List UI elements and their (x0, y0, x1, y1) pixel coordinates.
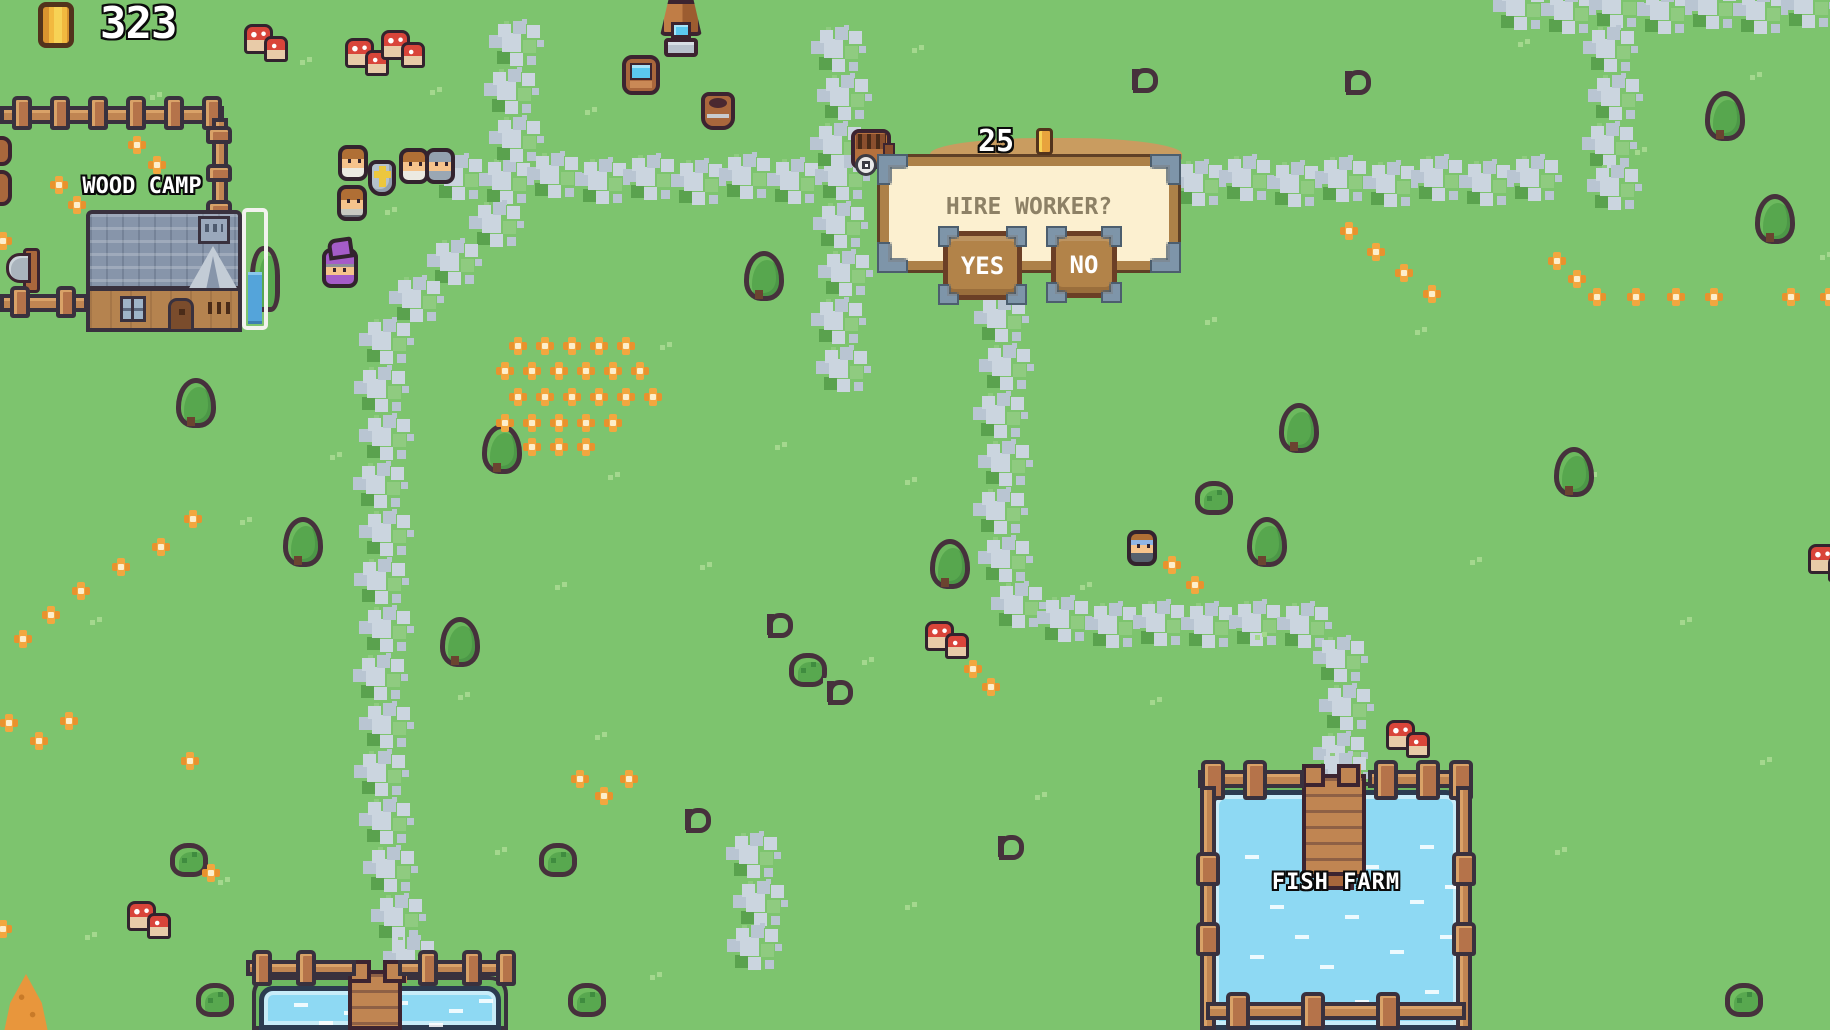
no-button-label: NO (1070, 251, 1099, 279)
corner-bracket-icon (1103, 228, 1120, 245)
stone-path (1742, 0, 1755, 5)
stone-path (368, 610, 381, 623)
grass-tuft (912, 48, 917, 53)
flower (1588, 288, 1606, 306)
well-basin (664, 38, 698, 57)
flower (0, 714, 18, 732)
stone-path (820, 30, 833, 43)
fence-rail (1200, 786, 1216, 1030)
stone-path (987, 540, 1000, 553)
flower (617, 388, 635, 406)
water-ripple (294, 1003, 308, 1007)
tree (176, 378, 206, 426)
stone-path (584, 162, 597, 175)
flower (563, 337, 581, 355)
flower (550, 414, 568, 432)
stone-path (1372, 165, 1385, 178)
stone-path (1328, 688, 1341, 701)
mushrooms (244, 24, 282, 60)
fence-post (126, 96, 146, 130)
flower (1782, 288, 1800, 306)
water-ripple (319, 1021, 333, 1025)
flower (72, 582, 90, 600)
water-ripple (1250, 955, 1264, 959)
water-ripple (429, 1023, 443, 1027)
wood-camp-building[interactable] (86, 210, 242, 332)
fence-post (1452, 922, 1476, 956)
mushrooms (381, 30, 419, 66)
stone-path (498, 24, 511, 37)
water-barrel[interactable] (622, 55, 660, 95)
stone-path (536, 156, 549, 169)
fence-post (1196, 852, 1220, 886)
grass-tuft (150, 95, 155, 100)
flower (550, 362, 568, 380)
hire-worker-dialog: HIRE WORKER? (880, 157, 1178, 270)
flower (42, 606, 60, 624)
stone-path (988, 348, 1001, 361)
flower (631, 362, 649, 380)
flower (0, 920, 12, 938)
stone-path (362, 658, 375, 671)
flower (523, 438, 541, 456)
flower (14, 630, 32, 648)
flower (590, 337, 608, 355)
yes-button-label: YES (961, 252, 1004, 280)
grass-tuft (1760, 760, 1765, 765)
bush (1725, 983, 1763, 1017)
stone-path (1286, 606, 1299, 619)
dock (1302, 774, 1366, 878)
axe-icon (6, 246, 40, 290)
fish-farm-partial[interactable] (246, 946, 516, 1030)
flower (595, 787, 613, 805)
flower (128, 136, 146, 154)
tree (1279, 403, 1309, 451)
tree (283, 517, 313, 565)
stone-path (819, 126, 832, 139)
stone-path (1516, 159, 1529, 172)
flower (523, 414, 541, 432)
stone-path (498, 120, 511, 133)
corner-bracket-icon (1152, 244, 1179, 271)
flower (577, 438, 595, 456)
stone-path (493, 72, 506, 85)
stone-path (1324, 160, 1337, 173)
flower (1820, 288, 1830, 306)
coin-icon (1036, 128, 1053, 155)
stone-path (363, 370, 376, 383)
stone-path (368, 418, 381, 431)
fence-post (164, 96, 184, 130)
grass-tuft (1680, 620, 1685, 625)
flower (1163, 556, 1181, 574)
fence-post (1226, 992, 1250, 1030)
grass-tuft (1035, 795, 1040, 800)
grass-tuft (495, 850, 500, 855)
grass-tuft (1150, 700, 1155, 705)
fence-post (1452, 852, 1476, 886)
knight-shield[interactable] (368, 160, 396, 196)
stone-path (1596, 168, 1609, 181)
flower (1548, 252, 1566, 270)
dock (348, 970, 402, 1030)
bush (196, 983, 234, 1017)
corner-bracket-icon (940, 286, 957, 303)
flower (184, 510, 202, 528)
stone-path (1592, 30, 1605, 43)
tree (1554, 447, 1584, 495)
fence-post (1374, 760, 1398, 800)
stone-path (1646, 0, 1659, 5)
villager[interactable] (338, 145, 368, 181)
fence-post (1196, 922, 1220, 956)
fence-post (10, 286, 30, 318)
stone-path (1276, 165, 1289, 178)
water-ripple (1295, 935, 1309, 939)
clay-pot[interactable] (701, 92, 735, 130)
corner-bracket-icon (1103, 284, 1120, 301)
wall-vent (208, 302, 234, 314)
yes-button[interactable]: YES (943, 231, 1022, 300)
stone-path (1238, 604, 1251, 617)
water-ripple (1410, 900, 1424, 904)
stone-path (368, 706, 381, 719)
flower (112, 558, 130, 576)
stone-path (776, 162, 789, 175)
stone-path (1180, 164, 1193, 177)
sprout (822, 678, 856, 704)
grass-tuft (1415, 330, 1420, 335)
fence-post (1376, 992, 1400, 1030)
flower (536, 337, 554, 355)
grass-tuft (1255, 635, 1260, 640)
flower (604, 414, 622, 432)
stone-path (735, 836, 748, 849)
well[interactable] (660, 0, 702, 58)
water-ripple (1270, 905, 1284, 909)
grass-tuft (1555, 850, 1560, 855)
stone-path (824, 158, 837, 171)
bush (1195, 481, 1233, 515)
fence-post (1301, 992, 1325, 1030)
flower (30, 732, 48, 750)
sprout (993, 833, 1027, 859)
window (120, 296, 146, 322)
tree (1247, 517, 1277, 565)
flower (152, 538, 170, 556)
fence-post (1416, 760, 1440, 800)
flower (563, 388, 581, 406)
stone-path (363, 562, 376, 575)
coin-icon (38, 2, 74, 48)
flower (202, 864, 220, 882)
mushrooms (1808, 544, 1830, 580)
grass-tuft (1470, 560, 1475, 565)
fence-post (50, 96, 70, 130)
dialog-title: HIRE WORKER? (889, 194, 1169, 220)
fence-post (496, 950, 516, 986)
flower (1568, 270, 1586, 288)
grass-tuft (1820, 255, 1825, 260)
pot (0, 136, 12, 166)
corner-bracket-icon (1048, 284, 1065, 301)
stone-path (1420, 159, 1433, 172)
flower (0, 232, 12, 250)
villager[interactable] (337, 185, 367, 221)
flower (644, 388, 662, 406)
flower (536, 388, 554, 406)
carrot (4, 974, 48, 1030)
flower (1186, 576, 1204, 594)
stone-path (363, 754, 376, 767)
flower (982, 678, 1000, 696)
fence-post (252, 950, 272, 986)
mushrooms (925, 621, 963, 657)
fence-post (296, 950, 316, 986)
mushrooms (345, 38, 383, 74)
grass-tuft (905, 480, 910, 485)
grass-tuft (555, 585, 560, 590)
flower (1340, 222, 1358, 240)
fish-farm-label: FISH FARM (1226, 870, 1446, 895)
stone-path (827, 254, 840, 267)
stone-path (1228, 159, 1241, 172)
grass-tuft (430, 90, 435, 95)
stone-path (1190, 606, 1203, 619)
grass-tuft (1518, 42, 1523, 47)
flower (509, 388, 527, 406)
grass-tuft (330, 455, 335, 460)
stone-path (1322, 736, 1335, 749)
tree (1705, 91, 1735, 139)
stone-path (372, 850, 385, 863)
grass-tuft (458, 695, 463, 700)
fence-post (56, 286, 76, 318)
stone-path (736, 928, 749, 941)
water-ripple (479, 999, 493, 1003)
flower (60, 712, 78, 730)
no-button[interactable]: NO (1051, 231, 1117, 298)
fence-post (462, 950, 482, 986)
sprout (680, 806, 714, 832)
grass-tuft (700, 565, 705, 570)
flower (1705, 288, 1723, 306)
stone-path (822, 206, 835, 219)
stone-path (680, 163, 693, 176)
tree (744, 251, 774, 299)
flower (577, 362, 595, 380)
flower (1367, 243, 1385, 261)
flower (1667, 288, 1685, 306)
tree (930, 539, 960, 587)
armored-villager[interactable] (425, 148, 455, 184)
stone-path (825, 350, 838, 363)
fence-post (418, 950, 438, 986)
grass-tuft (650, 975, 655, 980)
stone-path (1094, 606, 1107, 619)
stone-path (368, 322, 381, 335)
water-ripple (1245, 855, 1259, 859)
stone-path (728, 157, 741, 170)
game-scene: 323 WOOD CAMP (0, 0, 1830, 1030)
tree (440, 617, 470, 665)
grass-tuft (240, 520, 245, 525)
stone-path (982, 396, 995, 409)
flower (496, 414, 514, 432)
flower (148, 156, 166, 174)
flower (604, 362, 622, 380)
round-badge (855, 154, 877, 176)
grass-tuft (1635, 150, 1640, 155)
flower (620, 770, 638, 788)
flower (1627, 288, 1645, 306)
fence-rail (0, 106, 224, 124)
stone-path (820, 302, 833, 315)
tree (1755, 194, 1785, 242)
progress-fill (248, 272, 262, 324)
water-ripple (1390, 950, 1404, 954)
pot (0, 170, 12, 206)
mushrooms (127, 901, 165, 937)
stone-path (398, 280, 411, 293)
corner-bracket-icon (879, 156, 906, 183)
grass-tuft (300, 60, 305, 65)
flower (617, 337, 635, 355)
wood-camp-label: WOOD CAMP (66, 174, 218, 199)
fence-post (1243, 760, 1267, 800)
wizard[interactable] (322, 248, 358, 288)
stone-path (1597, 78, 1610, 91)
stone-path (1142, 604, 1155, 617)
corner-bracket-icon (1008, 228, 1025, 245)
stone-path (632, 158, 645, 171)
hire-cost: 25 (958, 124, 1034, 159)
grass-tuft (85, 935, 90, 940)
grass-tuft (608, 475, 613, 480)
flower (496, 362, 514, 380)
stone-path (987, 444, 1000, 457)
sprout (762, 611, 796, 637)
sprout (1340, 68, 1374, 94)
flower (509, 337, 527, 355)
water-ripple (1345, 915, 1359, 919)
flower (964, 660, 982, 678)
flower (577, 414, 595, 432)
grass-tuft (775, 445, 780, 450)
flower (1395, 264, 1413, 282)
stone-path (742, 884, 755, 897)
stone-path (368, 514, 381, 527)
corner-bracket-icon (1152, 156, 1179, 183)
flower (181, 752, 199, 770)
stone-path (1046, 600, 1059, 613)
flower (571, 770, 589, 788)
stone-path (478, 205, 491, 218)
corner-bracket-icon (1048, 228, 1065, 245)
grass-tuft (1080, 585, 1085, 590)
fence-rail (1456, 786, 1472, 1030)
stone-path (1502, 0, 1515, 1)
grass-tuft (905, 905, 910, 910)
well-water (671, 22, 691, 38)
roof-vent (198, 216, 230, 244)
stone-path (1550, 0, 1563, 5)
water-ripple (1420, 845, 1434, 849)
stone-path (380, 898, 393, 911)
flower (1423, 285, 1441, 303)
flower (523, 362, 541, 380)
corner-bracket-icon (940, 228, 957, 245)
fence-post (88, 96, 108, 130)
stone-path (982, 492, 995, 505)
stone-path (826, 78, 839, 91)
water-ripple (1320, 965, 1334, 969)
stone-path (368, 802, 381, 815)
stone-path (1000, 586, 1013, 599)
fish-farm[interactable]: FISH FARM (1198, 756, 1476, 1030)
stone-path (1468, 164, 1481, 177)
mushrooms (1386, 720, 1424, 756)
door (168, 298, 194, 332)
stone-path (436, 243, 449, 256)
grass-tuft (595, 735, 600, 740)
flower (550, 438, 568, 456)
wood-camp-progress-bar (242, 208, 268, 330)
bush (568, 983, 606, 1017)
bush (539, 843, 577, 877)
grass-tuft (862, 660, 867, 665)
grass-tuft (1750, 75, 1755, 80)
sprout (1127, 66, 1161, 92)
stone-path (983, 300, 996, 313)
water-ripple (1365, 865, 1379, 869)
worker-villager[interactable] (1127, 530, 1157, 566)
corner-bracket-icon (879, 244, 906, 271)
water-ripple (449, 1009, 463, 1013)
fence-post (206, 126, 232, 144)
grass-tuft (385, 210, 390, 215)
grass-tuft (1205, 320, 1210, 325)
stone-path (1322, 640, 1335, 653)
water-ripple (1425, 990, 1439, 994)
grass-tuft (660, 345, 665, 350)
stone-path (1591, 126, 1604, 139)
coin-counter: 323 (100, 0, 176, 49)
stone-path (488, 162, 501, 175)
grass-tuft (90, 620, 95, 625)
corner-bracket-icon (1008, 286, 1025, 303)
fence-post (12, 96, 32, 130)
grass-tuft (585, 110, 590, 115)
flower (590, 388, 608, 406)
stone-path (362, 466, 375, 479)
